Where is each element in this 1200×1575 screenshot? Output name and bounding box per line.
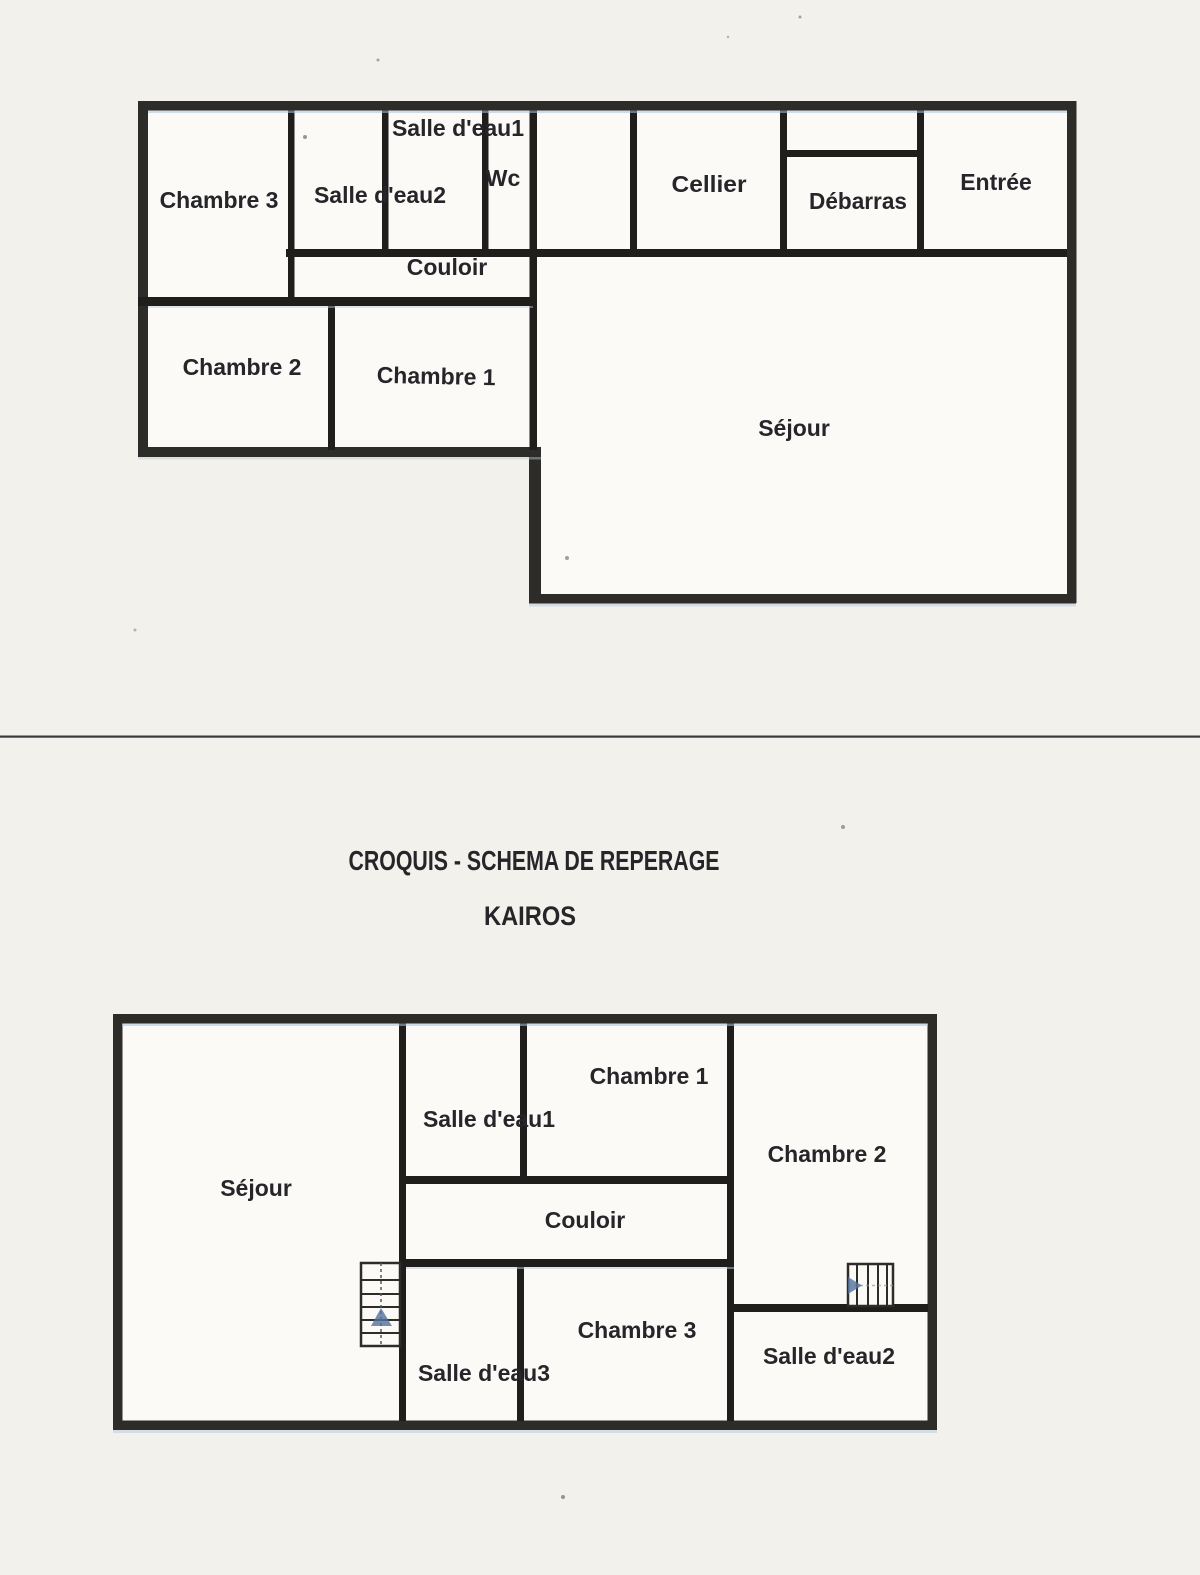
svg-text:Salle d'eau1: Salle d'eau1 xyxy=(423,1106,555,1132)
svg-text:CROQUIS - SCHEMA DE REPERAGE: CROQUIS - SCHEMA DE REPERAGE xyxy=(349,845,720,876)
svg-text:KAIROS: KAIROS xyxy=(484,901,576,931)
svg-text:Chambre 2: Chambre 2 xyxy=(768,1141,887,1167)
svg-text:Débarras: Débarras xyxy=(809,188,907,214)
svg-text:Entrée: Entrée xyxy=(960,169,1032,195)
svg-text:Chambre 2: Chambre 2 xyxy=(183,354,302,380)
svg-text:Wc: Wc xyxy=(486,165,521,191)
svg-text:Chambre 1: Chambre 1 xyxy=(590,1063,709,1089)
svg-text:Salle d'eau3: Salle d'eau3 xyxy=(418,1360,550,1386)
svg-text:Salle d'eau2: Salle d'eau2 xyxy=(314,182,446,208)
svg-text:Salle d'eau2: Salle d'eau2 xyxy=(763,1343,895,1369)
svg-text:Séjour: Séjour xyxy=(220,1175,292,1201)
svg-text:Chambre 3: Chambre 3 xyxy=(160,187,279,213)
svg-text:Salle d'eau1: Salle d'eau1 xyxy=(392,115,524,141)
svg-text:Chambre 1: Chambre 1 xyxy=(376,362,496,390)
svg-text:Couloir: Couloir xyxy=(407,254,488,280)
svg-text:Séjour: Séjour xyxy=(758,415,830,441)
svg-text:Chambre 3: Chambre 3 xyxy=(578,1317,697,1343)
svg-text:Couloir: Couloir xyxy=(545,1207,626,1233)
svg-text:Cellier: Cellier xyxy=(672,171,747,197)
